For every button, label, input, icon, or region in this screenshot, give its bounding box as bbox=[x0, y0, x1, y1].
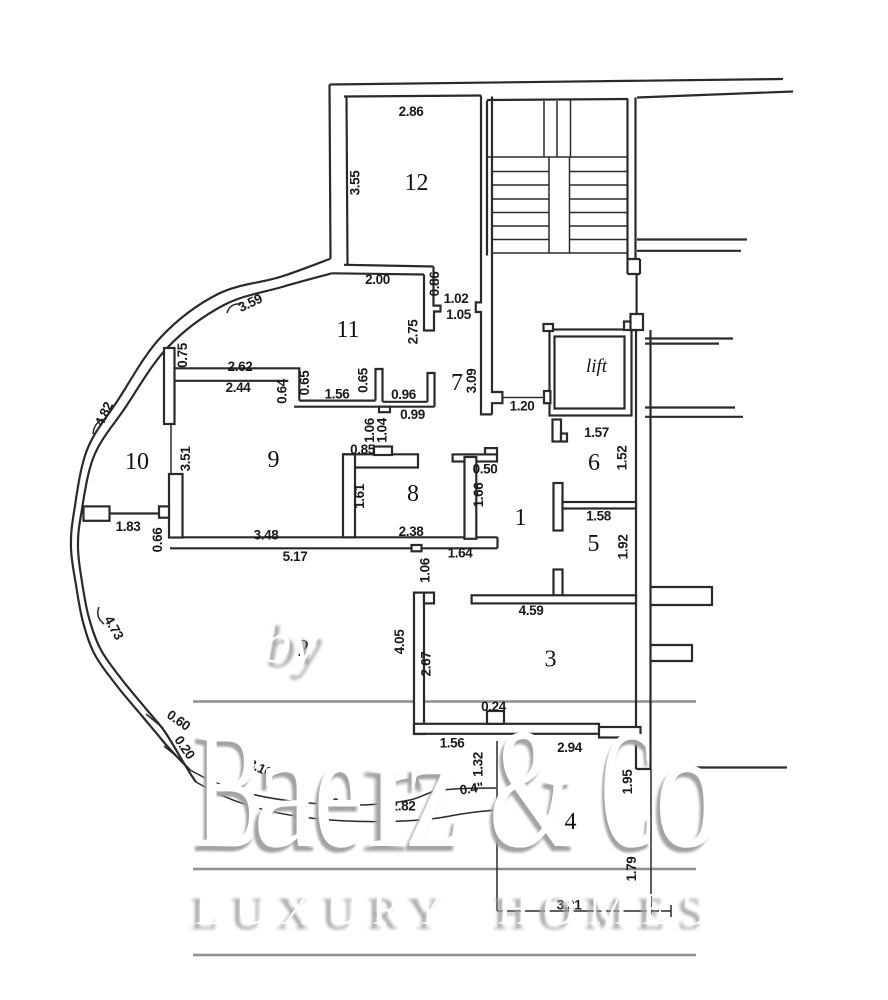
svg-text:2.44: 2.44 bbox=[226, 380, 252, 395]
svg-text:4.73: 4.73 bbox=[101, 613, 127, 643]
svg-text:1.61: 1.61 bbox=[352, 483, 367, 509]
svg-text:3.59: 3.59 bbox=[236, 291, 265, 315]
svg-text:0.99: 0.99 bbox=[400, 407, 425, 422]
svg-text:1.06: 1.06 bbox=[418, 557, 433, 583]
svg-text:0.4": 0.4" bbox=[459, 779, 484, 797]
svg-text:1.05: 1.05 bbox=[446, 307, 472, 322]
svg-text:8: 8 bbox=[407, 481, 419, 507]
svg-text:9: 9 bbox=[268, 447, 280, 473]
svg-text:0.64: 0.64 bbox=[275, 378, 290, 404]
svg-text:6: 6 bbox=[588, 450, 600, 476]
svg-text:3.55: 3.55 bbox=[348, 170, 363, 196]
svg-text:1.04: 1.04 bbox=[375, 417, 390, 443]
svg-text:3.48: 3.48 bbox=[254, 528, 280, 543]
svg-text:7: 7 bbox=[451, 370, 463, 396]
svg-text:1.02: 1.02 bbox=[444, 291, 469, 306]
svg-text:1.58: 1.58 bbox=[586, 509, 612, 524]
svg-text:0.85: 0.85 bbox=[350, 442, 376, 457]
svg-text:4.05: 4.05 bbox=[392, 629, 407, 655]
svg-text:0.65: 0.65 bbox=[297, 370, 312, 396]
svg-text:2.62: 2.62 bbox=[228, 359, 253, 374]
svg-text:1.92: 1.92 bbox=[616, 535, 631, 560]
svg-text:0.75: 0.75 bbox=[175, 342, 190, 368]
svg-text:lift: lift bbox=[586, 356, 608, 377]
svg-text:3: 3 bbox=[545, 647, 557, 673]
svg-text:2.67: 2.67 bbox=[419, 652, 434, 677]
svg-text:1.57: 1.57 bbox=[584, 425, 609, 440]
svg-text:0.96: 0.96 bbox=[391, 387, 417, 402]
svg-text:1.56: 1.56 bbox=[325, 387, 351, 402]
svg-text:3.09: 3.09 bbox=[464, 369, 479, 394]
svg-text:1.66: 1.66 bbox=[471, 482, 486, 508]
svg-text:3.51: 3.51 bbox=[178, 446, 193, 472]
svg-text:2.38: 2.38 bbox=[399, 524, 425, 539]
svg-text:1.20: 1.20 bbox=[510, 399, 535, 414]
svg-text:0.65: 0.65 bbox=[356, 367, 371, 393]
svg-text:5.17: 5.17 bbox=[283, 549, 308, 564]
svg-text:0.86: 0.86 bbox=[427, 271, 442, 297]
svg-text:1.83: 1.83 bbox=[116, 519, 142, 534]
svg-text:4.59: 4.59 bbox=[519, 603, 544, 618]
svg-text:0.60: 0.60 bbox=[164, 707, 193, 733]
svg-text:1: 1 bbox=[515, 505, 527, 531]
svg-text:2.75: 2.75 bbox=[406, 319, 421, 345]
svg-text:2.00: 2.00 bbox=[365, 272, 390, 287]
svg-text:5: 5 bbox=[588, 531, 600, 557]
svg-text:1.64: 1.64 bbox=[448, 546, 474, 561]
svg-text:0.50: 0.50 bbox=[473, 462, 498, 477]
svg-text:11: 11 bbox=[336, 317, 359, 343]
svg-text:2.86: 2.86 bbox=[399, 104, 425, 119]
svg-text:10: 10 bbox=[125, 449, 149, 475]
svg-text:0.66: 0.66 bbox=[150, 527, 165, 553]
svg-text:1.52: 1.52 bbox=[615, 446, 630, 471]
svg-text:12: 12 bbox=[405, 170, 429, 196]
svg-text:1.32: 1.32 bbox=[471, 752, 486, 777]
